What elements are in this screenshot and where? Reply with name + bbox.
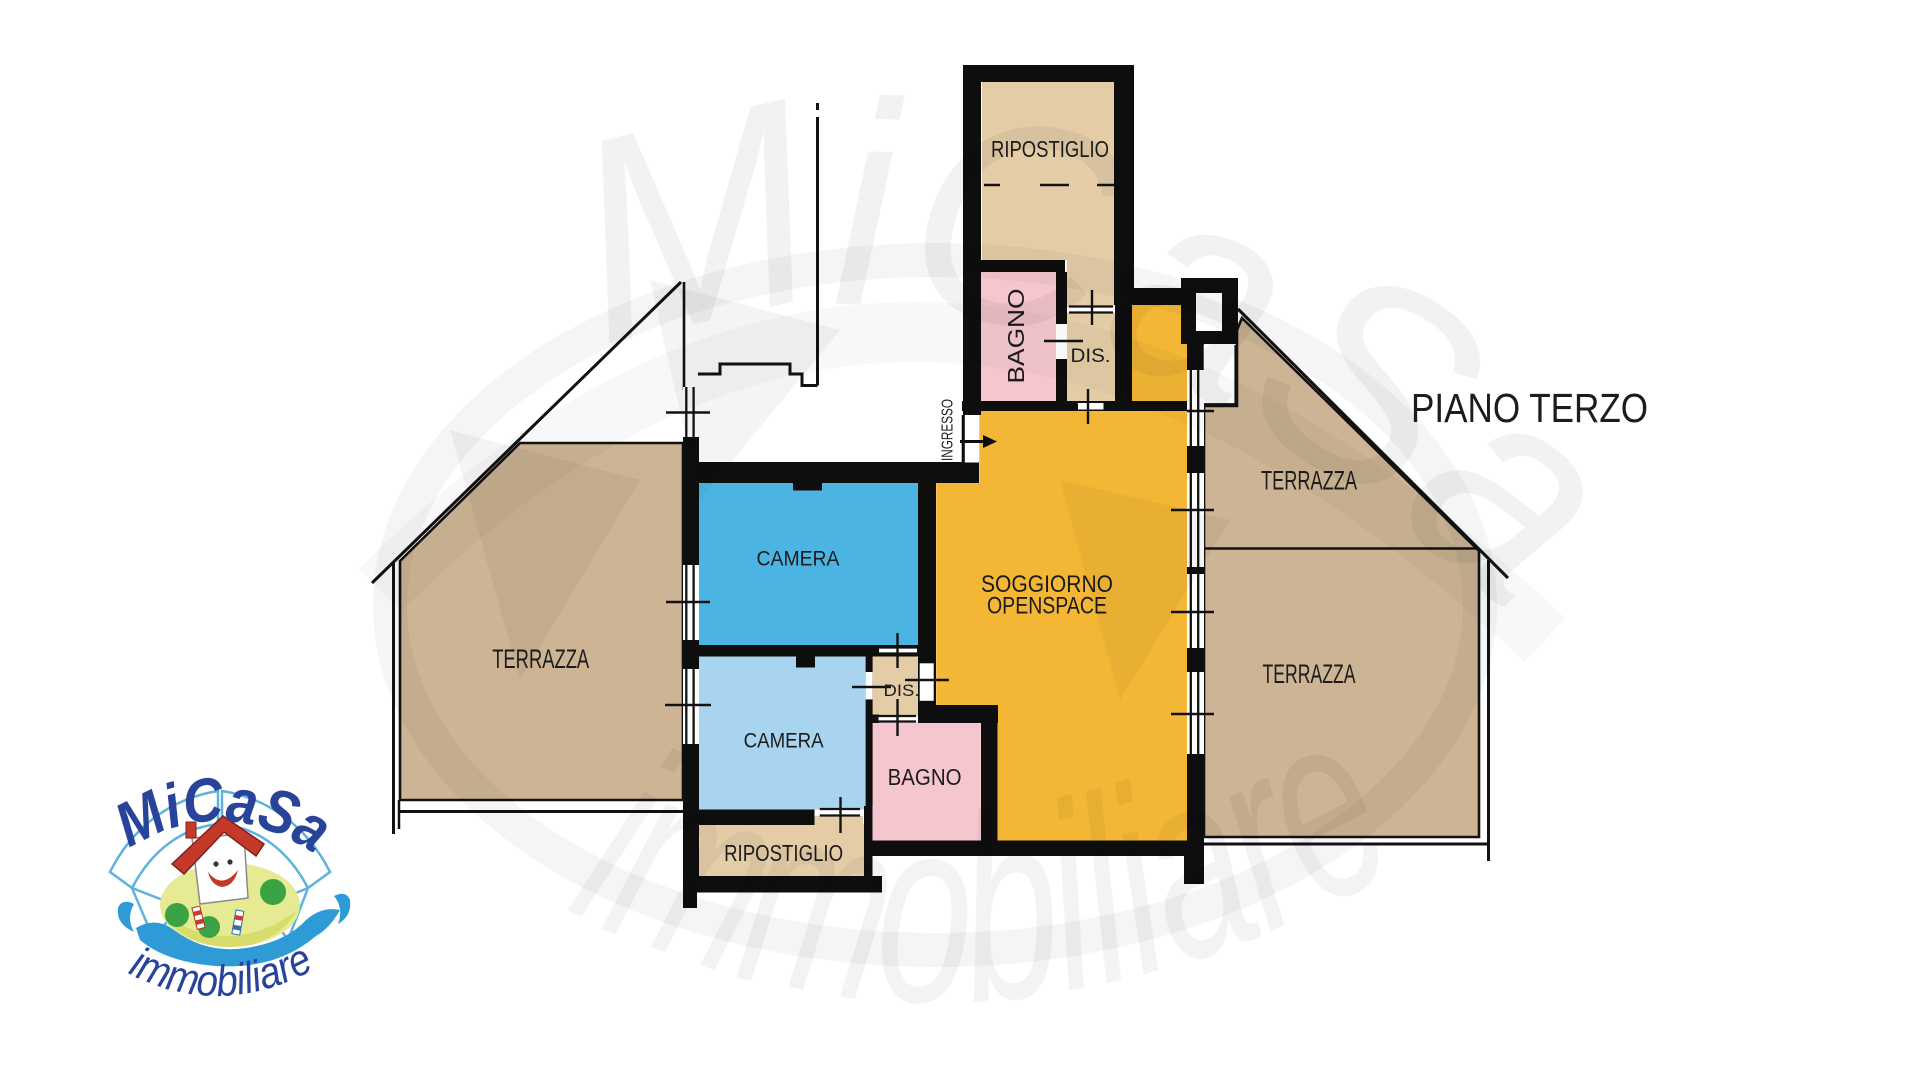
- svg-text:INGRESSO: INGRESSO: [940, 399, 957, 461]
- svg-text:OPENSPACE: OPENSPACE: [987, 593, 1107, 620]
- svg-text:DIS.: DIS.: [884, 681, 920, 700]
- svg-text:TERRAZZA: TERRAZZA: [492, 644, 589, 674]
- svg-text:CAMERA: CAMERA: [757, 547, 841, 571]
- svg-text:PIANO TERZO: PIANO TERZO: [1411, 385, 1648, 431]
